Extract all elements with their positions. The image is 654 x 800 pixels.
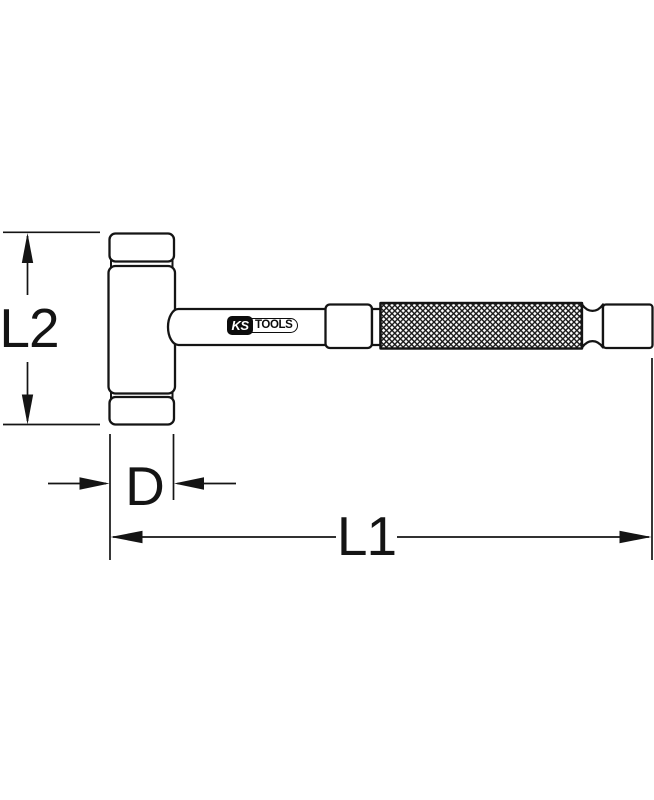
l1-arrow-right-icon xyxy=(620,531,652,543)
hammer-diagram: L2 D L1 xyxy=(0,0,654,800)
hammer-head-bottom-cap xyxy=(110,397,175,425)
technical-drawing-canvas: L2 D L1 KS TOOLS xyxy=(0,0,654,800)
hammer-head-body xyxy=(109,266,176,394)
dimension-label-l2: L2 xyxy=(0,297,59,359)
l1-arrow-left-icon xyxy=(111,531,143,543)
handle-waist xyxy=(582,305,603,348)
dimension-lines xyxy=(3,232,652,560)
l2-arrow-down-icon xyxy=(22,395,33,425)
handle-end-cap xyxy=(603,305,653,349)
dimension-label-d: D xyxy=(125,455,164,517)
tools-logo-text: TOOLS xyxy=(248,318,298,333)
ks-logo-badge: KS xyxy=(227,316,253,335)
handle-neck xyxy=(372,309,381,345)
d-arrow-right-icon xyxy=(80,477,110,489)
d-arrow-left-icon xyxy=(174,477,204,489)
handle-collar xyxy=(326,305,373,349)
hammer-outline xyxy=(109,234,653,425)
hammer-head-top-cap xyxy=(110,234,175,262)
dimension-label-l1: L1 xyxy=(337,505,396,567)
ks-tools-logo: KS TOOLS xyxy=(227,316,298,335)
l2-arrow-up-icon xyxy=(22,233,33,263)
knurled-grip xyxy=(381,303,583,349)
